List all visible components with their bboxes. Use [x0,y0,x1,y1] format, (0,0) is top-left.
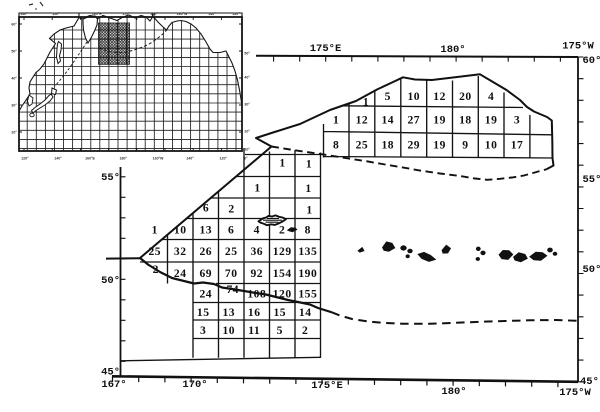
svg-text:10°: 10° [244,147,250,151]
svg-text:160°E: 160°E [92,12,102,16]
svg-text:180°: 180° [441,386,466,398]
svg-text:8: 8 [333,139,339,152]
svg-text:32: 32 [174,245,187,258]
svg-text:36: 36 [251,245,264,258]
svg-text:30°: 30° [244,103,250,107]
svg-text:9: 9 [462,139,468,152]
svg-text:2: 2 [279,224,285,237]
svg-text:30°: 30° [11,103,17,107]
svg-text:18: 18 [382,139,395,152]
svg-text:180°: 180° [150,12,158,16]
svg-text:1: 1 [305,182,311,195]
svg-text:175°E: 175°E [311,380,343,392]
svg-text:160°E: 160°E [85,157,95,161]
svg-text:120°: 120° [21,157,29,161]
svg-text:25: 25 [356,139,369,152]
svg-text:29: 29 [408,139,421,152]
svg-text:160°W: 160°W [177,12,188,16]
svg-text:154: 154 [273,267,292,280]
svg-text:175°E: 175°E [310,43,342,55]
svg-text:6: 6 [228,224,234,237]
svg-text:25: 25 [149,245,162,258]
svg-text:50°: 50° [244,51,250,55]
svg-text:5: 5 [277,324,283,337]
svg-text:140°: 140° [20,12,28,16]
svg-text:13: 13 [223,306,236,319]
svg-text:0°: 0° [244,157,248,161]
svg-text:155: 155 [298,288,317,301]
svg-text:8: 8 [305,224,311,237]
svg-text:10: 10 [485,139,498,152]
svg-text:140°: 140° [208,12,216,16]
svg-text:10: 10 [408,90,421,103]
svg-text:50°: 50° [101,275,120,287]
svg-text:70: 70 [225,267,238,280]
svg-text:2: 2 [228,203,234,216]
svg-text:25: 25 [225,245,238,258]
svg-text:10: 10 [223,324,236,337]
svg-text:10: 10 [174,224,187,237]
svg-text:180°: 180° [440,44,465,56]
svg-text:55°: 55° [583,174,600,186]
svg-text:15: 15 [274,306,287,319]
svg-text:11: 11 [248,324,260,337]
svg-text:129: 129 [273,245,292,258]
svg-text:170°: 170° [182,379,207,391]
svg-text:19: 19 [433,114,446,127]
svg-text:45°: 45° [101,367,120,379]
svg-text:1: 1 [152,224,158,237]
svg-text:160°W: 160°W [153,157,164,161]
svg-text:40°: 40° [11,77,17,81]
svg-text:5: 5 [385,90,391,103]
svg-text:15: 15 [197,306,210,319]
svg-text:120°: 120° [232,12,240,16]
svg-text:3: 3 [200,324,206,337]
svg-text:175°W: 175°W [559,387,591,399]
svg-text:20: 20 [459,90,472,103]
svg-text:20°: 20° [244,129,250,133]
svg-text:140°: 140° [54,157,62,161]
svg-text:16: 16 [248,306,261,319]
svg-text:1: 1 [254,182,260,195]
svg-text:120°: 120° [219,157,227,161]
svg-text:3: 3 [514,114,520,127]
svg-text:60°: 60° [11,23,17,27]
svg-text:170°: 170° [122,12,130,16]
svg-text:19: 19 [485,114,498,127]
svg-text:20°: 20° [11,131,17,135]
svg-text:50°: 50° [583,264,600,276]
svg-text:4: 4 [488,90,494,103]
svg-text:12: 12 [433,90,446,103]
svg-text:19: 19 [433,139,446,152]
svg-text:180°: 180° [119,157,127,161]
svg-text:13: 13 [200,224,213,237]
svg-text:2: 2 [302,324,308,337]
svg-text:1: 1 [279,157,285,170]
svg-text:40°: 40° [244,75,250,79]
svg-text:14: 14 [299,306,312,319]
svg-text:55°: 55° [101,172,120,184]
svg-text:50°: 50° [11,49,17,53]
svg-text:24: 24 [200,288,213,301]
svg-text:17: 17 [511,139,524,152]
svg-text:140°: 140° [186,157,194,161]
svg-text:1: 1 [306,158,312,171]
svg-text:135: 135 [298,245,317,258]
svg-text:167°: 167° [101,379,126,391]
svg-text:18: 18 [459,114,472,127]
svg-text:60°: 60° [583,55,600,67]
svg-text:4: 4 [254,224,260,237]
svg-text:175°W: 175°W [562,41,594,53]
svg-text:14: 14 [382,114,395,127]
svg-text:26: 26 [200,245,213,258]
svg-text:69: 69 [200,267,213,280]
svg-text:1: 1 [306,204,312,217]
svg-text:1: 1 [333,114,339,127]
svg-text:12: 12 [356,114,369,127]
svg-text:27: 27 [408,114,421,127]
svg-text:190: 190 [298,267,317,280]
svg-text:92: 92 [251,267,264,280]
svg-text:150°: 150° [52,12,60,16]
